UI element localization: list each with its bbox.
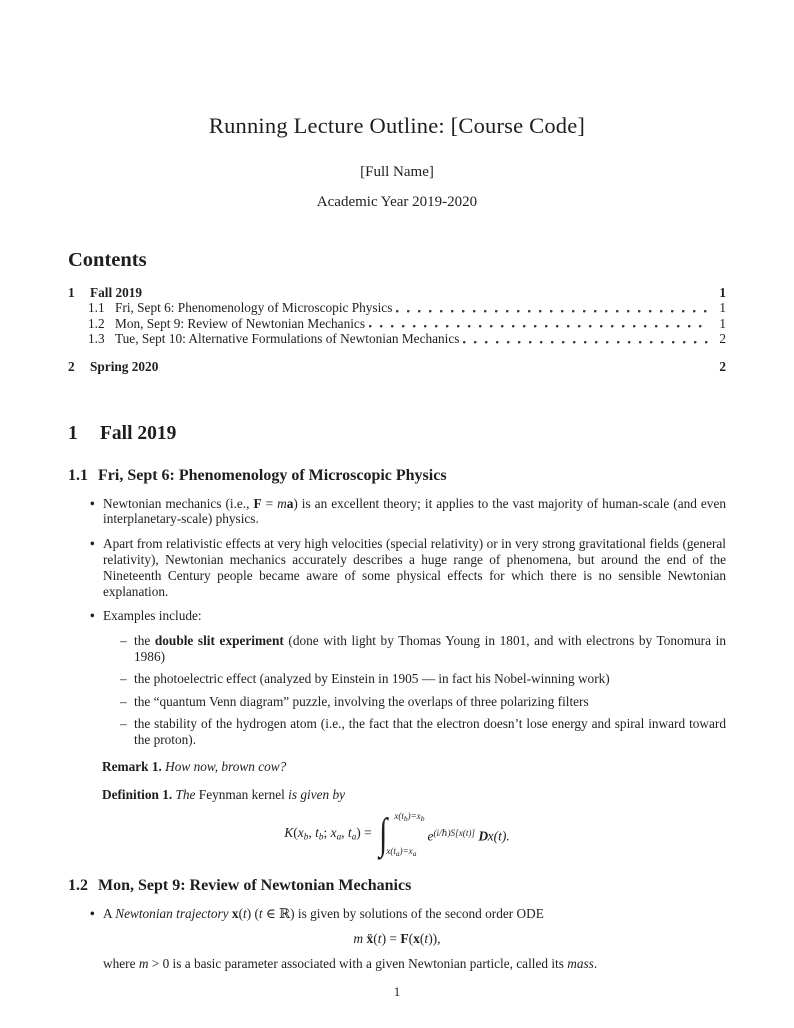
equation-lhs: K(xb, tb; xa, ta) = (284, 825, 375, 845)
bullet-list: • A Newtonian trajectory x(t) (t ∈ ℝ) is… (68, 906, 726, 922)
sub-item: – the double slit experiment (done with … (68, 633, 726, 665)
bullet-item: • Examples include: (68, 608, 726, 624)
toc-entry-1-3[interactable]: 1.3 Tue, Sept 10: Alternative Formulatio… (68, 331, 726, 347)
remark-text: How now, brown cow? (165, 759, 286, 774)
sub-item: – the “quantum Venn diagram” puzzle, inv… (68, 694, 726, 710)
sub-item: – the stability of the hydrogen atom (i.… (68, 716, 726, 748)
remark-1: Remark 1. How now, brown cow? (102, 759, 726, 775)
example-sublist: – the double slit experiment (done with … (68, 633, 726, 747)
section-number: 1 (68, 422, 100, 445)
integral-icon: ∫ (379, 813, 387, 857)
toc-label: Tue, Sept 10: Alternative Formulations o… (115, 331, 459, 347)
contents-heading: Contents (68, 248, 726, 272)
equation-body: m ẍ(t) = F(x(t)), (353, 931, 440, 947)
toc-number: 2 (68, 359, 90, 375)
toc-number: 1.2 (88, 316, 115, 332)
definition-label: Definition 1. (102, 787, 172, 802)
date-line: Academic Year 2019-2020 (68, 195, 726, 211)
bullet-list: • Newtonian mechanics (i.e., F = ma) is … (68, 496, 726, 748)
bullet-marker-icon: • (90, 906, 103, 922)
bullet-text: Examples include: (103, 608, 726, 624)
integral-lower-limit: x(ta)=xa (386, 846, 424, 859)
toc-entry-1-2[interactable]: 1.2 Mon, Sept 9: Review of Newtonian Mec… (68, 316, 726, 332)
document-body: 1Fall 2019 1.1Fri, Sept 6: Phenomenology… (68, 422, 726, 972)
author-line: [Full Name] (68, 165, 726, 181)
subsection-title: Mon, Sept 9: Review of Newtonian Mechani… (98, 877, 411, 894)
toc-page-number: 1 (716, 316, 726, 332)
bullet-item: • Apart from relativistic effects at ver… (68, 536, 726, 599)
definition-text: The Feynman kernel is given by (176, 787, 346, 802)
toc-leader (162, 369, 708, 372)
toc-leader (396, 310, 708, 313)
bullet-marker-icon: • (90, 496, 103, 528)
newton-ode-equation: m ẍ(t) = F(x(t)), (68, 931, 726, 947)
page-number: 1 (0, 984, 794, 1000)
sub-item-text: the stability of the hydrogen atom (i.e.… (134, 716, 726, 748)
subsection-number: 1.2 (68, 876, 98, 895)
toc-entry-spring-2020[interactable]: 2 Spring 2020 2 (68, 359, 726, 375)
integral-limits: x(tb)=xb x(ta)=xa (388, 811, 424, 859)
dash-marker-icon: – (120, 671, 134, 687)
bullet-marker-icon: • (90, 536, 103, 599)
section-title: Fall 2019 (100, 423, 176, 444)
sub-item-text: the “quantum Venn diagram” puzzle, invol… (134, 694, 726, 710)
integral-upper-limit: x(tb)=xb (394, 811, 424, 824)
toc-leader (146, 294, 708, 297)
subsection-heading-1-1: 1.1Fri, Sept 6: Phenomenology of Microsc… (68, 466, 726, 485)
toc-number: 1.3 (88, 331, 115, 347)
toc-page-number: 1 (716, 300, 726, 316)
toc-number: 1.1 (88, 300, 115, 316)
dash-marker-icon: – (120, 633, 134, 665)
section-heading-fall-2019: 1Fall 2019 (68, 422, 726, 445)
toc-entry-fall-2019[interactable]: 1 Fall 2019 1 (68, 285, 726, 301)
toc-label: Spring 2020 (90, 359, 158, 375)
toc-page-number: 2 (716, 359, 726, 375)
sub-item-text: the double slit experiment (done with li… (134, 633, 726, 665)
toc-entry-1-1[interactable]: 1.1 Fri, Sept 6: Phenomenology of Micros… (68, 300, 726, 316)
toc-leader (463, 341, 708, 344)
bullet-text: Newtonian mechanics (i.e., F = ma) is an… (103, 496, 726, 528)
subsection-title: Fri, Sept 6: Phenomenology of Microscopi… (98, 467, 447, 484)
document-page: Running Lecture Outline: [Course Code] [… (0, 0, 794, 1028)
toc-label: Fall 2019 (90, 285, 142, 301)
toc-page-number: 2 (716, 331, 726, 347)
feynman-kernel-equation: K(xb, tb; xa, ta) = ∫ x(tb)=xb x(ta)=xa … (68, 809, 726, 861)
continuation-paragraph: where m > 0 is a basic parameter associa… (103, 956, 726, 972)
equation-rhs: e(i/ℏ)S[x(t)] Dx(t). (427, 826, 509, 844)
integral-expression: ∫ x(tb)=xb x(ta)=xa (379, 809, 424, 861)
sub-item-text: the photoelectric effect (analyzed by Ei… (134, 671, 726, 687)
bullet-text: A Newtonian trajectory x(t) (t ∈ ℝ) is g… (103, 906, 726, 922)
dash-marker-icon: – (120, 716, 134, 748)
toc-label: Mon, Sept 9: Review of Newtonian Mechani… (115, 316, 365, 332)
definition-1: Definition 1. The Feynman kernel is give… (102, 787, 726, 803)
toc-number: 1 (68, 285, 90, 301)
remark-label: Remark 1. (102, 759, 162, 774)
bullet-marker-icon: • (90, 608, 103, 624)
toc-label: Fri, Sept 6: Phenomenology of Microscopi… (115, 300, 392, 316)
toc-leader (369, 325, 708, 328)
table-of-contents: 1 Fall 2019 1 1.1 Fri, Sept 6: Phenomeno… (68, 285, 726, 375)
bullet-text: Apart from relativistic effects at very … (103, 536, 726, 599)
document-title: Running Lecture Outline: [Course Code] (68, 112, 726, 140)
dash-marker-icon: – (120, 694, 134, 710)
subsection-number: 1.1 (68, 466, 98, 485)
bullet-item: • A Newtonian trajectory x(t) (t ∈ ℝ) is… (68, 906, 726, 922)
sub-item: – the photoelectric effect (analyzed by … (68, 671, 726, 687)
toc-page-number: 1 (716, 285, 726, 301)
bullet-item: • Newtonian mechanics (i.e., F = ma) is … (68, 496, 726, 528)
subsection-heading-1-2: 1.2Mon, Sept 9: Review of Newtonian Mech… (68, 876, 726, 895)
